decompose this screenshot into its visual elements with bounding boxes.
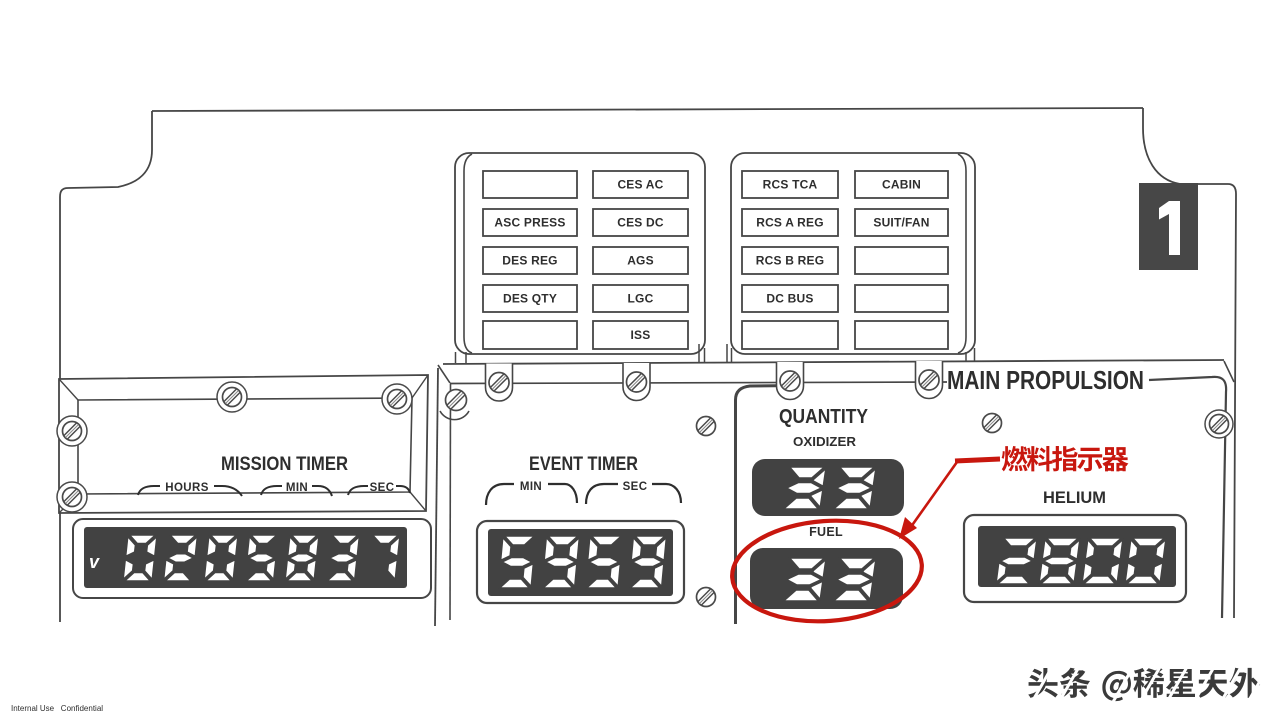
svg-text:RCS B REG: RCS B REG — [756, 254, 824, 268]
svg-text:MIN: MIN — [520, 481, 542, 493]
svg-text:ISS: ISS — [631, 328, 651, 342]
svg-text:MISSION TIMER: MISSION TIMER — [221, 454, 348, 475]
svg-text:HOURS: HOURS — [165, 482, 209, 494]
svg-text:DES REG: DES REG — [502, 254, 557, 268]
svg-text:DC BUS: DC BUS — [766, 292, 813, 306]
svg-text:SEC: SEC — [623, 481, 648, 493]
svg-text:AGS: AGS — [627, 254, 654, 268]
svg-text:EVENT TIMER: EVENT TIMER — [529, 454, 638, 475]
svg-text:v: v — [89, 552, 100, 572]
svg-text:CES AC: CES AC — [617, 178, 663, 192]
svg-text:QUANTITY: QUANTITY — [779, 406, 869, 428]
svg-text:HELIUM: HELIUM — [1043, 488, 1106, 507]
svg-text:OXIDIZER: OXIDIZER — [793, 435, 856, 449]
svg-text:RCS A REG: RCS A REG — [756, 216, 824, 230]
svg-text:SUIT/FAN: SUIT/FAN — [873, 216, 929, 230]
svg-text:Internal Use Confidential: Internal Use Confidential — [11, 704, 103, 713]
svg-text:ASC PRESS: ASC PRESS — [494, 216, 565, 230]
svg-text:DES QTY: DES QTY — [503, 292, 557, 306]
svg-text:FUEL: FUEL — [809, 525, 843, 539]
svg-text:RCS TCA: RCS TCA — [763, 178, 818, 192]
svg-text:LGC: LGC — [628, 292, 654, 306]
svg-text:CES DC: CES DC — [617, 216, 664, 230]
svg-text:SEC: SEC — [370, 482, 395, 494]
svg-text:MAIN PROPULSION: MAIN PROPULSION — [947, 365, 1144, 395]
svg-text:MIN: MIN — [286, 482, 308, 494]
svg-text:CABIN: CABIN — [882, 178, 921, 192]
